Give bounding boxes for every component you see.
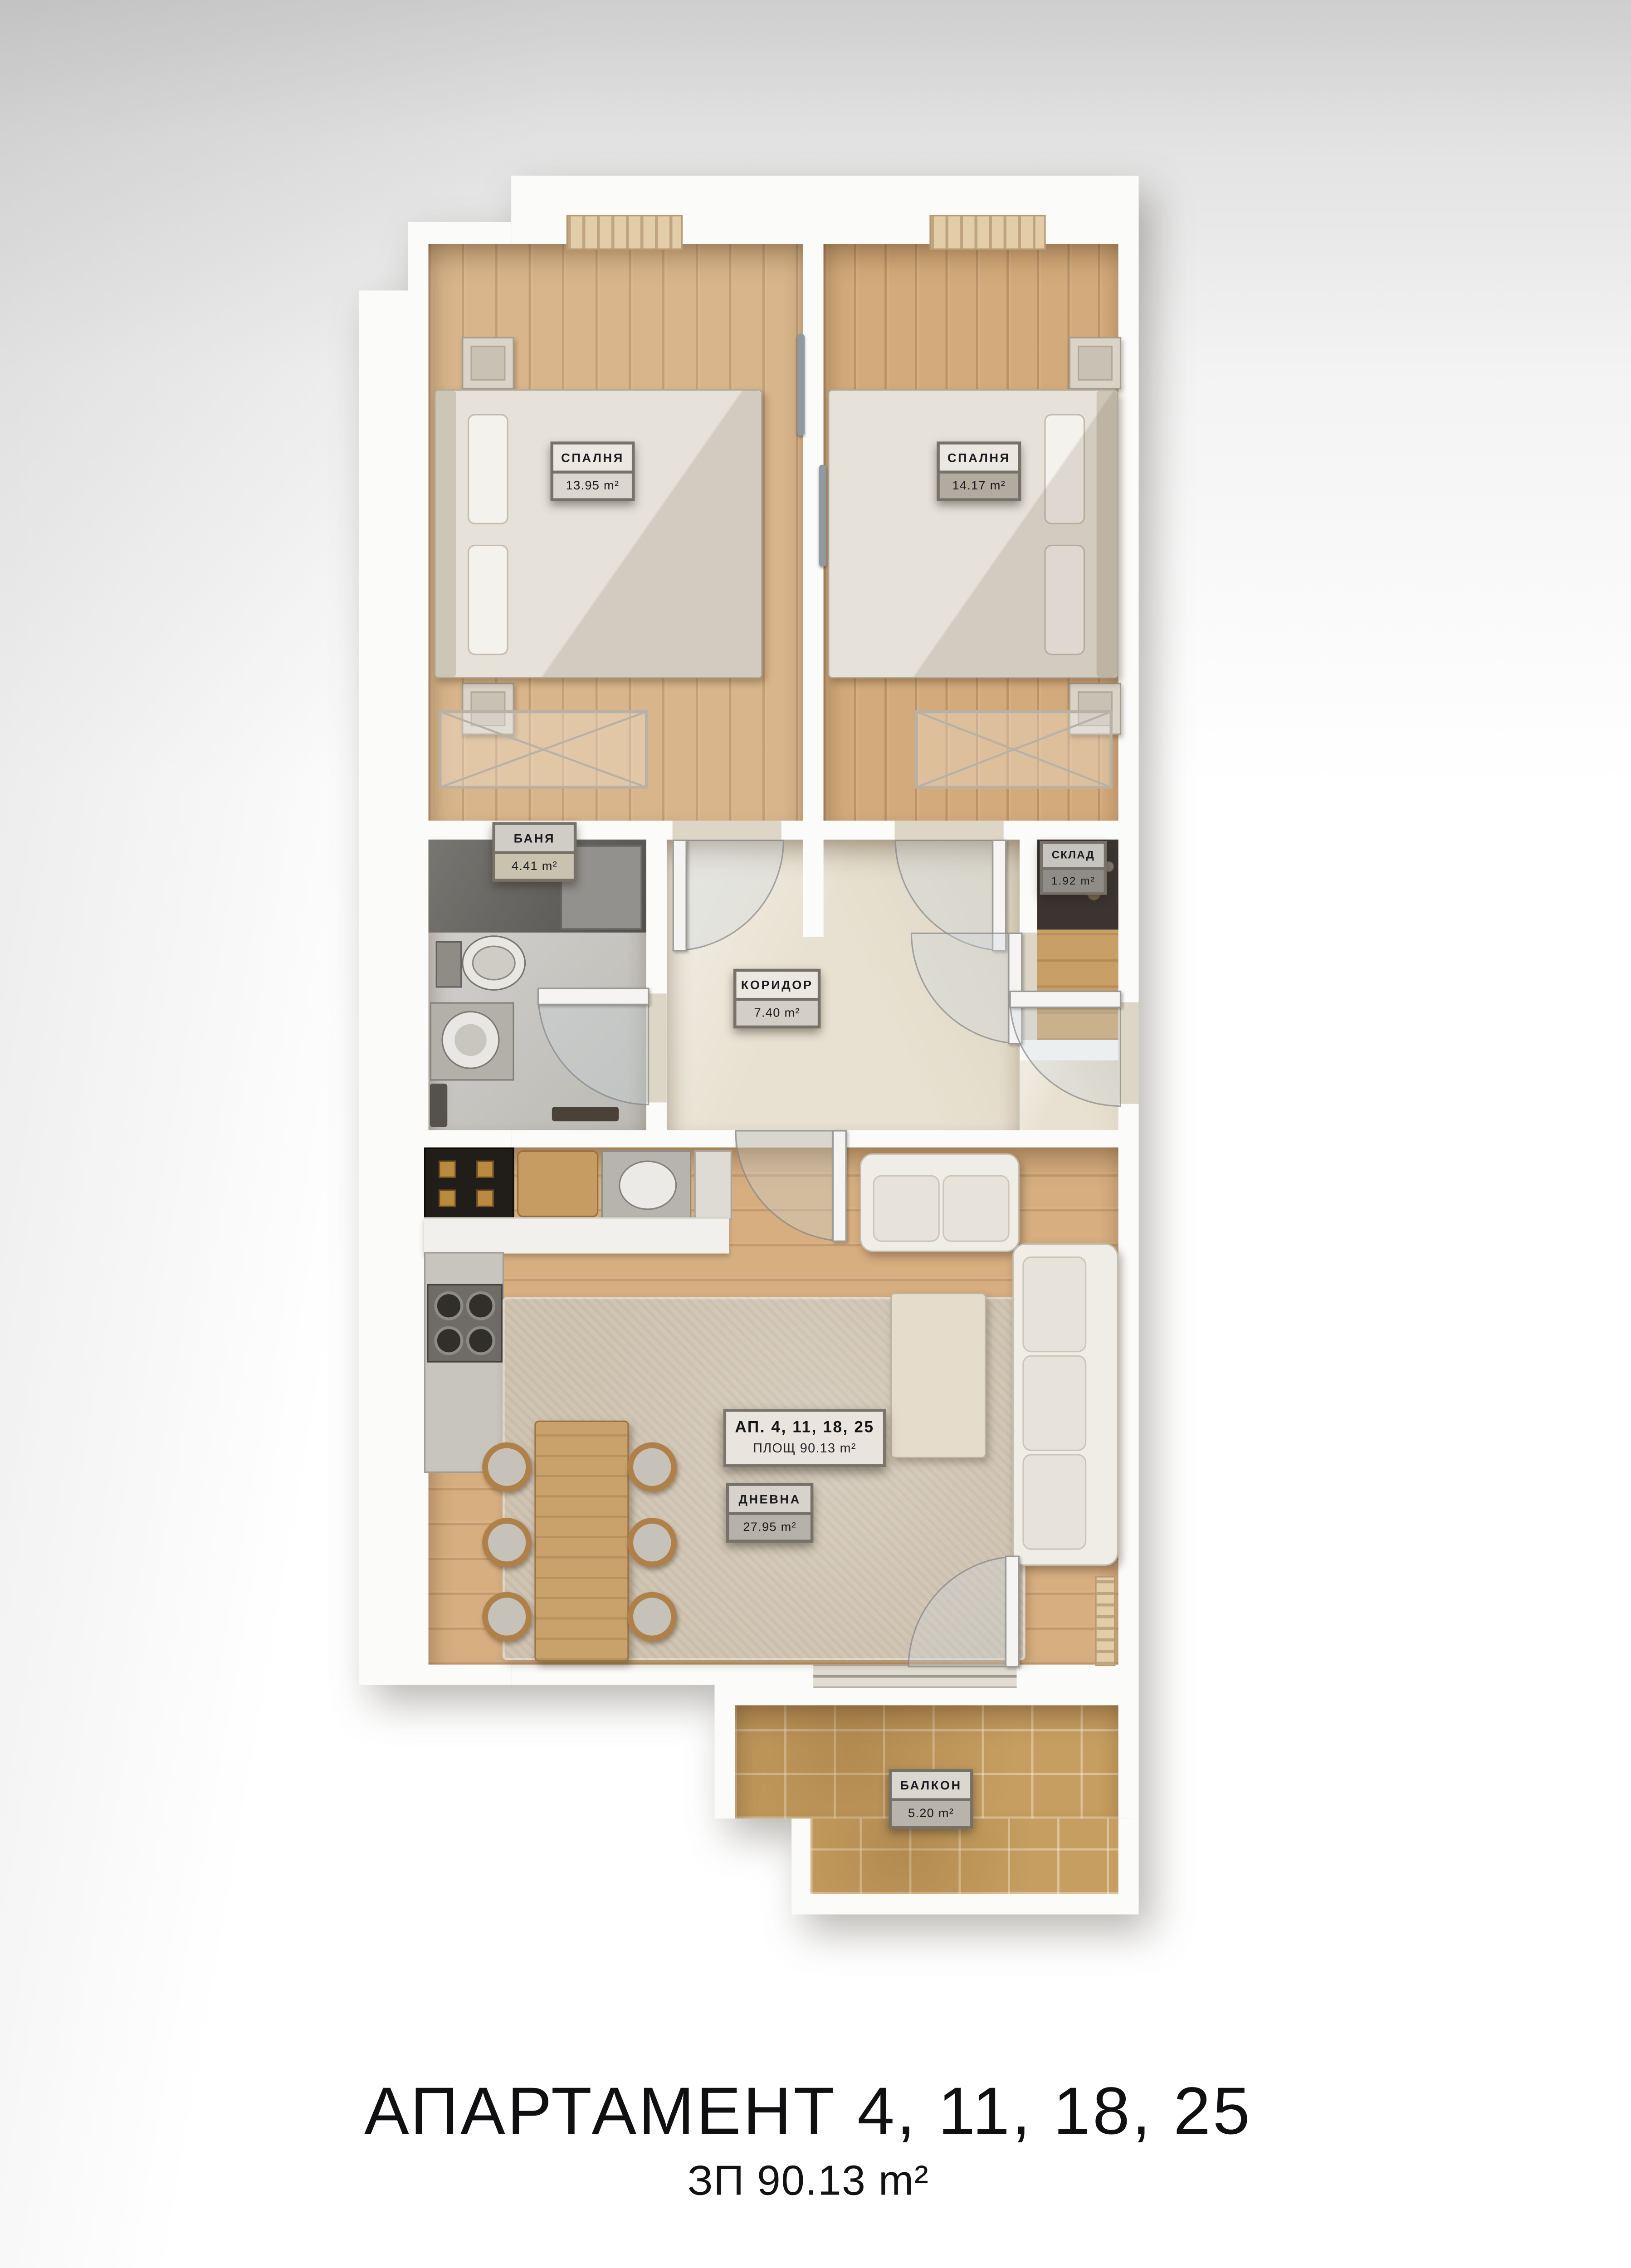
room-name: КОРИДОР	[737, 972, 818, 997]
burner	[466, 1291, 495, 1320]
room-name: СПАЛНЯ	[940, 445, 1018, 470]
page-subtitle: ЗП 90.13 m²	[0, 2158, 1616, 2206]
bench	[552, 1107, 619, 1121]
room-badge-bathroom: БАНЯ 4.41 m²	[493, 822, 577, 881]
loveseat	[860, 1154, 1020, 1252]
nightstand-left-top	[462, 337, 514, 389]
dining-chair	[482, 1442, 532, 1492]
wardrobe-icon-right	[915, 710, 1112, 789]
toilet-icon	[462, 935, 526, 991]
burner	[434, 1291, 463, 1320]
oven-knob	[439, 1161, 456, 1178]
bed-right	[828, 389, 1118, 678]
room-area: 13.95 m²	[553, 473, 632, 498]
room-name: БАЛКОН	[892, 1772, 970, 1798]
oven-knob	[476, 1161, 493, 1178]
loveseat-cushion	[942, 1175, 1009, 1242]
wall-center-lower	[803, 821, 824, 937]
room-badge-bedroom-left: СПАЛНЯ 13.95 m²	[551, 441, 635, 501]
burner	[466, 1326, 495, 1355]
oven-icon	[424, 1148, 514, 1220]
page-title: АПАРТАМЕНТ 4, 11, 18, 25	[0, 2071, 1616, 2150]
room-area: 14.17 m²	[940, 473, 1018, 498]
sofa-cushion	[1022, 1256, 1086, 1352]
sofa-cushion	[1022, 1454, 1086, 1549]
kitchen-sink	[601, 1150, 692, 1220]
dining-chair	[627, 1518, 677, 1567]
dining-chair	[627, 1592, 677, 1642]
cooktop-icon	[427, 1284, 503, 1363]
door-leaf-bedroom-left	[673, 840, 687, 952]
towel-rail	[430, 1084, 447, 1127]
oven-knob	[439, 1190, 456, 1207]
room-area: 7.40 m²	[737, 1000, 818, 1026]
bed-left	[434, 389, 762, 678]
door-leaf-balcony	[1005, 1556, 1020, 1668]
page: СПАЛНЯ 13.95 m² СПАЛНЯ 14.17 m² БАНЯ 4.4…	[0, 0, 1631, 2268]
bedroom-right-doorway	[895, 821, 1004, 840]
cutting-board	[517, 1150, 598, 1217]
bed-left-blanket	[436, 391, 761, 677]
door-leaf-entry	[1010, 991, 1122, 1008]
unit-name: АП. 4, 11, 18, 25	[735, 1419, 874, 1437]
unit-area: ПЛОЩ 90.13 m²	[735, 1441, 874, 1456]
room-badge-bedroom-right: СПАЛНЯ 14.17 m²	[937, 441, 1021, 501]
sofa	[1012, 1243, 1118, 1566]
unit-badge: АП. 4, 11, 18, 25 ПЛОЩ 90.13 m²	[723, 1409, 886, 1467]
radiator-bedroom-left	[566, 215, 683, 250]
sink-icon	[441, 1011, 499, 1069]
floor-plan: СПАЛНЯ 13.95 m² СПАЛНЯ 14.17 m² БАНЯ 4.4…	[0, 0, 1631, 2268]
room-area: 5.20 m²	[892, 1800, 970, 1826]
door-handle-left	[797, 334, 805, 436]
door-handle-right	[819, 465, 826, 567]
room-name: СКЛАД	[1043, 844, 1104, 866]
bed-right-blanket	[829, 391, 1117, 677]
bedroom-left-doorway	[673, 821, 781, 840]
dining-table	[534, 1421, 629, 1662]
kitchen-counter-front	[424, 1217, 729, 1253]
loveseat-cushion	[873, 1175, 940, 1242]
room-area: 4.41 m²	[495, 853, 574, 879]
wall-left-step2	[359, 290, 408, 1685]
nightstand-right-top	[1069, 337, 1121, 389]
kitchen-sink-basin	[619, 1161, 677, 1210]
room-badge-corridor: КОРИДОР 7.40 m²	[733, 969, 820, 1028]
door-leaf-living	[832, 1130, 847, 1242]
toilet-tank	[436, 941, 462, 987]
coffee-table	[890, 1293, 986, 1458]
room-name: ДНЕВНА	[729, 1486, 811, 1511]
dining-chair	[482, 1518, 532, 1567]
room-badge-living: ДНЕВНА 27.95 m²	[726, 1483, 813, 1542]
wardrobe-icon-left	[439, 710, 648, 789]
balcony-floor-lower	[811, 1818, 1118, 1894]
room-name: БАНЯ	[495, 825, 574, 850]
room-area: 1.92 m²	[1043, 870, 1104, 892]
dining-chair	[627, 1442, 677, 1492]
room-area: 27.95 m²	[729, 1514, 811, 1540]
radiator-living	[1095, 1576, 1115, 1666]
sofa-cushion	[1022, 1355, 1086, 1451]
oven-knob	[476, 1190, 493, 1207]
dishwasher	[694, 1150, 732, 1220]
room-badge-storage: СКЛАД 1.92 m²	[1040, 841, 1107, 894]
entry-doorway	[1118, 1002, 1139, 1104]
burner	[434, 1326, 463, 1355]
dining-chair	[482, 1592, 532, 1642]
room-badge-balcony: БАЛКОН 5.20 m²	[889, 1769, 973, 1828]
room-name: СПАЛНЯ	[553, 445, 632, 470]
radiator-bedroom-right	[929, 215, 1045, 250]
bathroom-doorway	[646, 993, 667, 1102]
balcony-sliding-door	[813, 1665, 1016, 1688]
door-leaf-bathroom	[537, 987, 649, 1005]
